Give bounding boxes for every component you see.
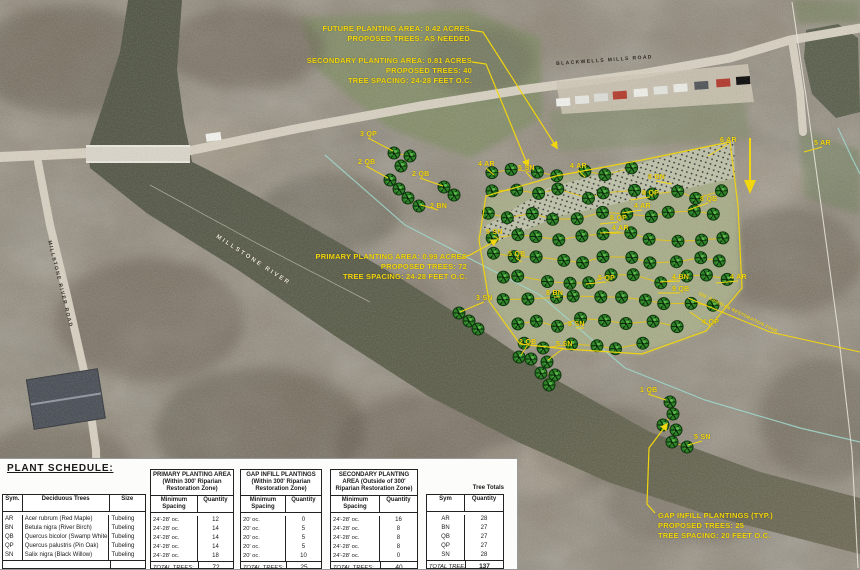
schedule-row: 24'-28' oc.8 <box>331 543 417 552</box>
tree-symbol <box>512 318 524 330</box>
schedule-row: BN27 <box>427 524 503 533</box>
tree-symbol <box>513 351 525 363</box>
tree-symbol <box>616 291 628 303</box>
tree-symbol <box>395 160 407 172</box>
tree-symbol <box>658 298 670 310</box>
tree-symbol <box>629 184 641 196</box>
tree-symbol <box>670 424 682 436</box>
total-row: TOTAL TREES:137 <box>427 560 503 569</box>
tree-symbol <box>567 290 579 302</box>
total-row <box>3 560 145 569</box>
tree-symbol <box>583 277 595 289</box>
tree-symbol <box>525 353 537 365</box>
tree-symbol <box>577 257 589 269</box>
tree-symbol <box>404 150 416 162</box>
schedule-row: 24'-28' oc.0 <box>331 552 417 561</box>
tree-symbol <box>582 192 594 204</box>
total-row: TOTAL TREES:25 <box>241 561 321 569</box>
tree-symbol <box>501 212 513 224</box>
schedule-row: SN28 <box>427 551 503 560</box>
tree-symbol <box>453 307 465 319</box>
tree-totals-header: Tree Totals <box>426 485 504 491</box>
primary-area-block: PRIMARY PLANTING AREA(Within 300' Ripari… <box>150 469 234 569</box>
tree-symbol <box>700 269 712 281</box>
tree-symbol <box>448 189 460 201</box>
schedule-row: 24'-28' oc.8 <box>331 525 417 534</box>
tree-symbol <box>621 208 633 220</box>
schedule-row: QB27 <box>427 533 503 542</box>
tree-symbol <box>512 270 524 282</box>
tree-symbol <box>605 269 617 281</box>
tree-symbol <box>553 234 565 246</box>
column-header: Minimum Spacing <box>241 496 286 512</box>
tree-symbol <box>625 227 637 239</box>
tree-symbol <box>626 251 638 263</box>
tree-symbol <box>681 441 693 453</box>
schedule-row: 20' oc.5 <box>241 534 321 543</box>
tree-symbol <box>533 187 545 199</box>
tree-symbol <box>571 213 583 225</box>
plant-schedule-panel: PLANT SCHEDULE: Tree Totals Sym.Deciduou… <box>0 458 518 570</box>
tree-symbol <box>531 166 543 178</box>
total-row: TOTAL TREES:72 <box>151 561 233 569</box>
tree-symbol <box>707 208 719 220</box>
tree-symbol <box>713 255 725 267</box>
tree-symbol <box>526 208 538 220</box>
tree-symbol <box>393 183 405 195</box>
tree-symbol <box>508 251 520 263</box>
column-header: Quantity <box>286 496 321 512</box>
planting-plan-sheet: 3 QP2 QB2 QB2 BN4 AR5 SN4 AR8 BN8 QP4 AR… <box>0 0 860 570</box>
tree-symbol <box>530 231 542 243</box>
tree-symbol <box>662 206 674 218</box>
schedule-row: AR28 <box>427 515 503 524</box>
tree-symbol <box>639 294 651 306</box>
schedule-row: 20' oc.0 <box>241 516 321 525</box>
schedule-row: 24'-28' oc.12 <box>151 516 233 525</box>
column-header: Quantity <box>198 496 233 512</box>
tree-symbol <box>672 235 684 247</box>
schedule-row: QP27 <box>427 542 503 551</box>
tree-symbol <box>597 187 609 199</box>
tree-symbol <box>535 367 547 379</box>
schedule-row: QBQuercus bicolor (Swamp White Oak)Tubel… <box>3 533 145 542</box>
tree-symbol <box>547 213 559 225</box>
tree-symbol <box>530 251 542 263</box>
tree-symbol <box>666 436 678 448</box>
tree-symbol <box>647 315 659 327</box>
column-header: Sym. <box>3 495 23 511</box>
tree-symbol <box>438 181 450 193</box>
schedule-row: 24'-28' oc.14 <box>151 525 233 534</box>
tree-symbol <box>655 277 667 289</box>
tree-symbol <box>597 228 609 240</box>
column-header: Quantity <box>465 495 503 511</box>
tree-symbol <box>671 321 683 333</box>
tree-symbol <box>646 188 658 200</box>
tree-symbol <box>721 273 733 285</box>
tree-symbol <box>472 323 484 335</box>
tree-symbol <box>597 206 609 218</box>
tree-symbol <box>690 192 702 204</box>
tree-symbol <box>645 211 657 223</box>
column-header: Quantity <box>380 496 417 512</box>
tree-symbol <box>599 315 611 327</box>
group-header: SECONDARY PLANTINGAREA (Outside of 300'R… <box>331 470 417 496</box>
tree-symbol <box>530 315 542 327</box>
tree-symbol <box>552 183 564 195</box>
column-header: Minimum Spacing <box>151 496 198 512</box>
tree-symbol <box>522 293 534 305</box>
tree-symbol <box>537 342 549 354</box>
group-header: PRIMARY PLANTING AREA(Within 300' Ripari… <box>151 470 233 496</box>
species-block: Sym.Deciduous TreesSizeARAcer rubrum (Re… <box>2 494 146 569</box>
schedule-row: 20' oc.5 <box>241 525 321 534</box>
tree-symbol <box>644 257 656 269</box>
schedule-row: 24'-28' oc.16 <box>331 516 417 525</box>
group-header: GAP INFILL PLANTINGS(Within 300' Riparia… <box>241 470 321 496</box>
tree-symbol <box>664 396 676 408</box>
schedule-row: 24'-28' oc.14 <box>151 534 233 543</box>
schedule-row: 24'-28' oc.14 <box>151 543 233 552</box>
tree-symbol <box>716 185 728 197</box>
tree-symbol <box>671 256 683 268</box>
schedule-row: 24'-28' oc.8 <box>331 534 417 543</box>
schedule-row: QPQuercus palustris (Pin Oak)Tubeling <box>3 542 145 551</box>
tree-symbol <box>637 337 649 349</box>
tree-symbol <box>543 379 555 391</box>
tree-totals-block: SymQuantityAR28BN27QB27QP27SN28TOTAL TRE… <box>426 494 504 569</box>
column-header: Minimum Spacing <box>331 496 380 512</box>
schedule-row: ARAcer rubrum (Red Maple)Tubeling <box>3 515 145 524</box>
tree-symbol <box>591 340 603 352</box>
tree-symbol <box>717 232 729 244</box>
tree-symbol <box>696 234 708 246</box>
schedule-row: SNSalix nigra (Black Willow)Tubeling <box>3 551 145 560</box>
gap-infill-block: GAP INFILL PLANTINGS(Within 300' Riparia… <box>240 469 322 569</box>
tree-symbol <box>497 271 509 283</box>
tree-symbol <box>626 162 638 174</box>
column-header: Size <box>110 495 146 511</box>
tree-symbol <box>597 251 609 263</box>
tree-symbol <box>552 320 564 332</box>
tree-symbol <box>695 252 707 264</box>
plant-schedule-title: PLANT SCHEDULE: <box>7 463 113 474</box>
schedule-row: BNBetula nigra (River Birch)Tubeling <box>3 524 145 533</box>
tree-symbol <box>512 229 524 241</box>
schedule-row: 24'-28' oc.18 <box>151 552 233 561</box>
tree-symbol <box>488 247 500 259</box>
secondary-area-block: SECONDARY PLANTINGAREA (Outside of 300'R… <box>330 469 418 569</box>
tree-symbol <box>627 269 639 281</box>
column-header: Sym <box>427 495 465 511</box>
column-header: Deciduous Trees <box>23 495 110 511</box>
tree-symbol <box>384 174 396 186</box>
schedule-row: 20' oc.5 <box>241 543 321 552</box>
schedule-row: 20' oc.10 <box>241 552 321 561</box>
tree-symbol <box>505 163 517 175</box>
tree-symbol <box>564 277 576 289</box>
tree-symbol <box>681 270 693 282</box>
total-row: TOTAL TREES:40 <box>331 561 417 569</box>
tree-symbol <box>542 276 554 288</box>
tree-symbol <box>575 312 587 324</box>
tree-symbol <box>558 254 570 266</box>
tree-symbol <box>707 299 719 311</box>
tree-symbol <box>402 192 414 204</box>
tree-symbol <box>576 230 588 242</box>
tree-symbol <box>620 318 632 330</box>
tree-symbol <box>599 169 611 181</box>
tree-symbol <box>497 294 509 306</box>
tree-symbol <box>672 185 684 197</box>
tree-symbol <box>595 291 607 303</box>
tree-symbol <box>566 338 578 350</box>
tree-symbol <box>643 233 655 245</box>
tree-symbol <box>667 408 679 420</box>
